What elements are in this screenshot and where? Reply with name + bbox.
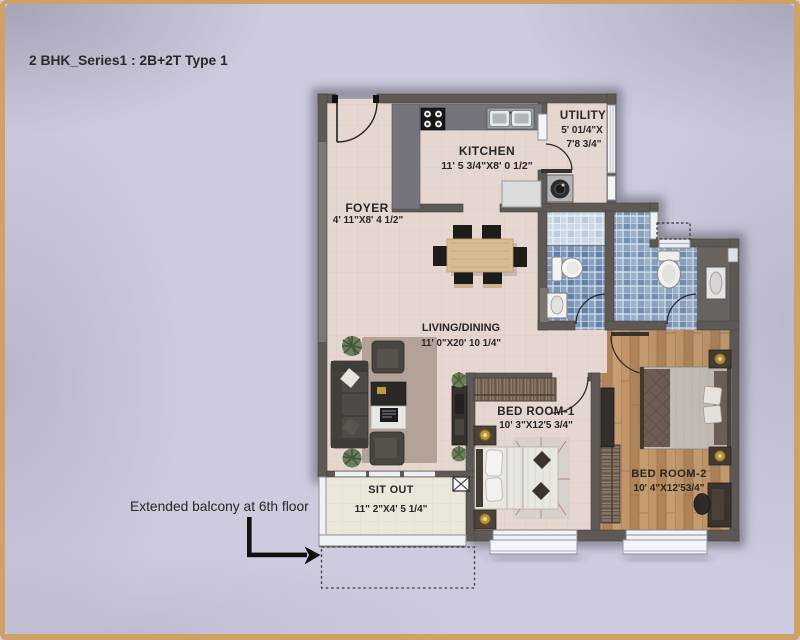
svg-text:2 BHK_Series1 : 2B+2T Type 1: 2 BHK_Series1 : 2B+2T Type 1 <box>29 53 228 68</box>
svg-text:FOYER: FOYER <box>345 201 388 215</box>
svg-text:LIVING/DINING: LIVING/DINING <box>422 322 500 334</box>
svg-text:KITCHEN: KITCHEN <box>459 144 515 158</box>
svg-text:10' 4"X12'53/4": 10' 4"X12'53/4" <box>634 483 705 494</box>
svg-text:BED ROOM-1: BED ROOM-1 <box>497 406 575 418</box>
svg-text:SIT OUT: SIT OUT <box>368 484 413 496</box>
svg-text:11" 2"X4' 5 1/4": 11" 2"X4' 5 1/4" <box>355 504 428 515</box>
svg-text:7'8 3/4": 7'8 3/4" <box>567 139 602 150</box>
svg-text:4' 11"X8' 4 1/2": 4' 11"X8' 4 1/2" <box>333 215 404 226</box>
svg-text:BED ROOM-2: BED ROOM-2 <box>631 468 706 480</box>
svg-text:11' 0"X20' 10 1/4": 11' 0"X20' 10 1/4" <box>421 338 501 349</box>
svg-text:10' 3"X12'5 3/4": 10' 3"X12'5 3/4" <box>499 420 573 431</box>
svg-text:5' 01/4"X: 5' 01/4"X <box>561 125 603 136</box>
svg-text:Extended balcony at 6th floor: Extended balcony at 6th floor <box>130 499 309 514</box>
svg-text:UTILITY: UTILITY <box>560 110 606 122</box>
svg-text:11' 5 3/4"X8' 0 1/2": 11' 5 3/4"X8' 0 1/2" <box>441 160 532 172</box>
